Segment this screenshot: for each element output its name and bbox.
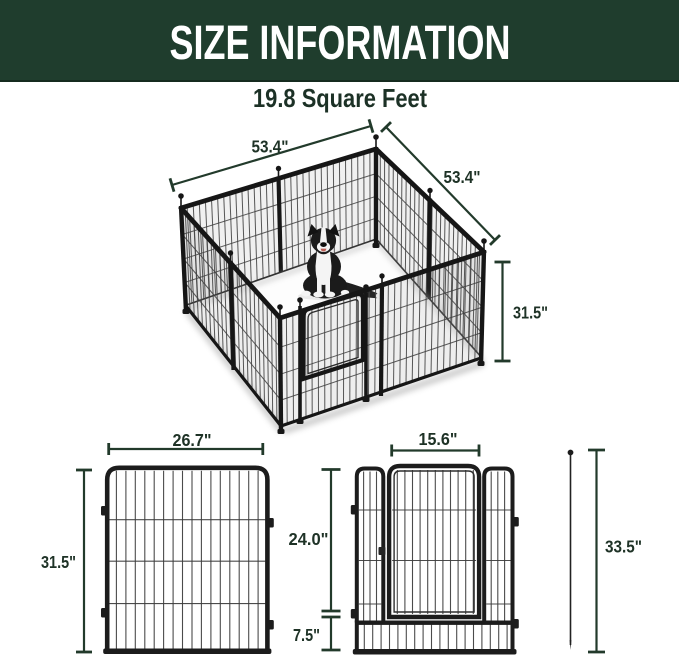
svg-text:24.0": 24.0": [289, 529, 329, 549]
svg-text:SIZE INFORMATION: SIZE INFORMATION: [170, 17, 511, 70]
svg-text:33.5": 33.5": [605, 537, 642, 557]
svg-text:7.5": 7.5": [293, 625, 320, 645]
svg-text:53.4": 53.4": [444, 167, 481, 187]
svg-text:31.5": 31.5": [41, 552, 76, 572]
svg-text:31.5": 31.5": [513, 303, 548, 323]
svg-text:19.8 Square Feet: 19.8 Square Feet: [253, 83, 427, 113]
svg-text:53.4": 53.4": [252, 137, 289, 157]
svg-text:15.6": 15.6": [419, 429, 458, 449]
svg-text:26.7": 26.7": [173, 430, 212, 450]
